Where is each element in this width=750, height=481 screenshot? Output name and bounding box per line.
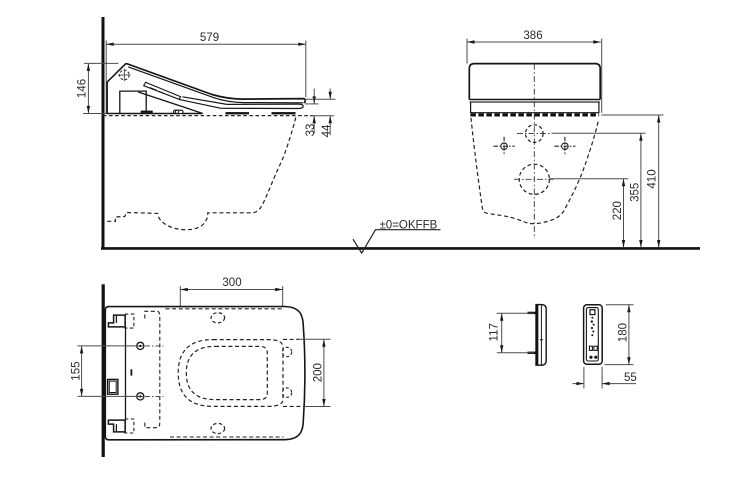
svg-text:146: 146 xyxy=(76,79,88,98)
svg-text:300: 300 xyxy=(222,277,241,289)
svg-text:155: 155 xyxy=(70,362,82,381)
svg-text:355: 355 xyxy=(630,183,642,202)
svg-text:200: 200 xyxy=(313,363,325,382)
svg-text:44: 44 xyxy=(321,124,333,137)
svg-text:33: 33 xyxy=(305,124,317,137)
svg-text:117: 117 xyxy=(489,323,501,341)
svg-text:410: 410 xyxy=(647,169,659,188)
svg-text:55: 55 xyxy=(624,372,637,384)
svg-text:±0=OKFFB: ±0=OKFFB xyxy=(380,220,438,232)
svg-text:386: 386 xyxy=(523,30,542,42)
svg-text:180: 180 xyxy=(617,323,629,342)
svg-text:579: 579 xyxy=(200,32,219,44)
svg-text:220: 220 xyxy=(612,201,624,220)
